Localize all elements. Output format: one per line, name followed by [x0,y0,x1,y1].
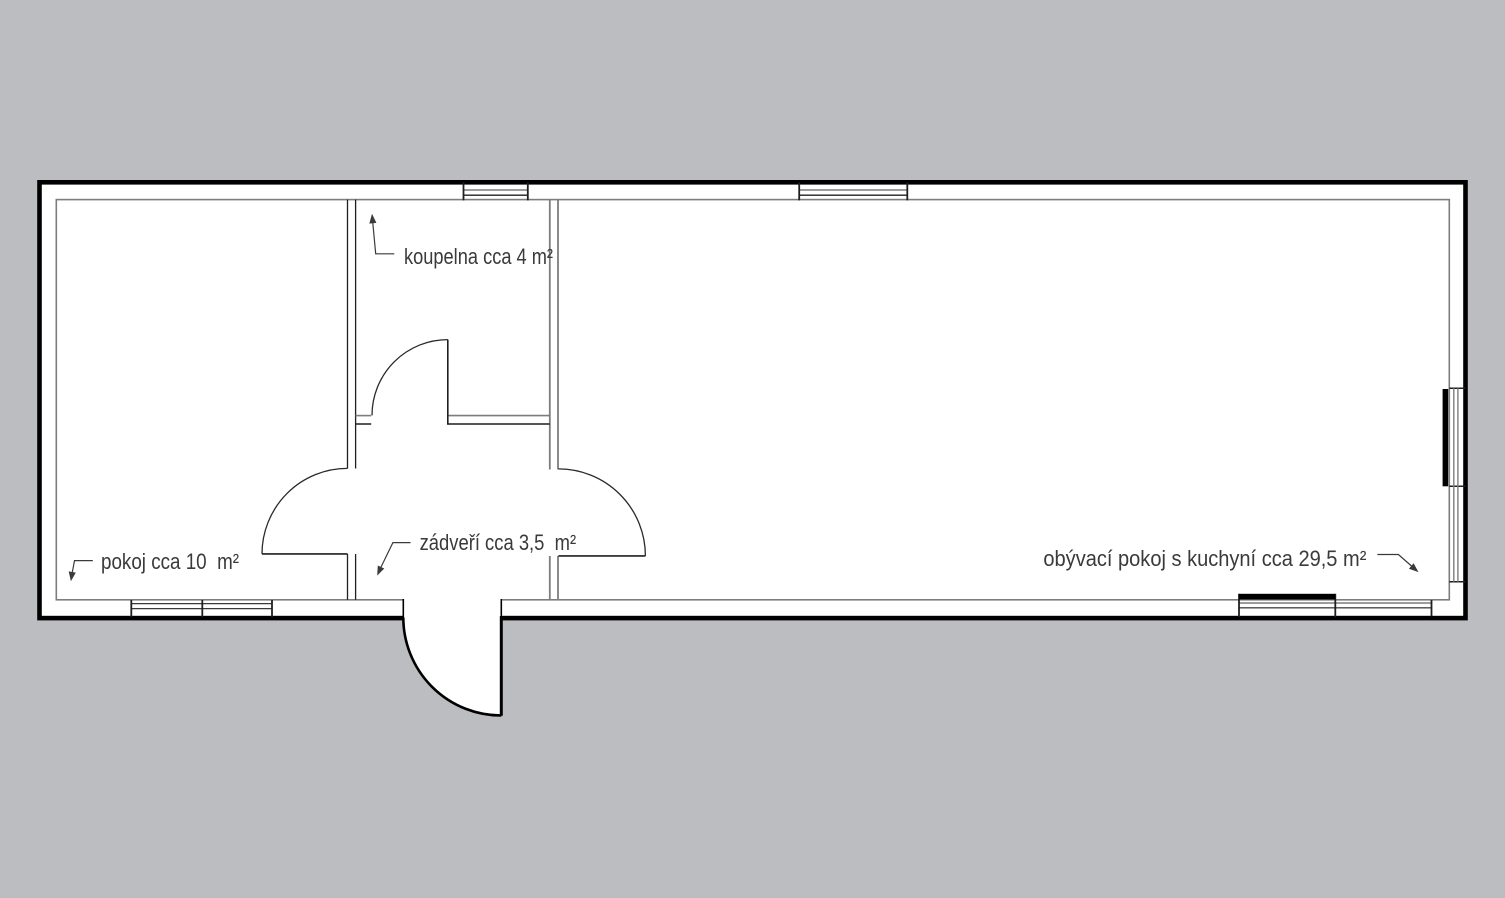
svg-text:obývací pokoj s kuchyní cca 29: obývací pokoj s kuchyní cca 29,5 m² [1043,546,1366,571]
svg-text:pokoj cca 10 m²: pokoj cca 10 m² [101,549,239,574]
svg-text:zádveří cca 3,5 m²: zádveří cca 3,5 m² [420,530,576,555]
svg-text:koupelna cca 4 m²: koupelna cca 4 m² [404,244,553,269]
